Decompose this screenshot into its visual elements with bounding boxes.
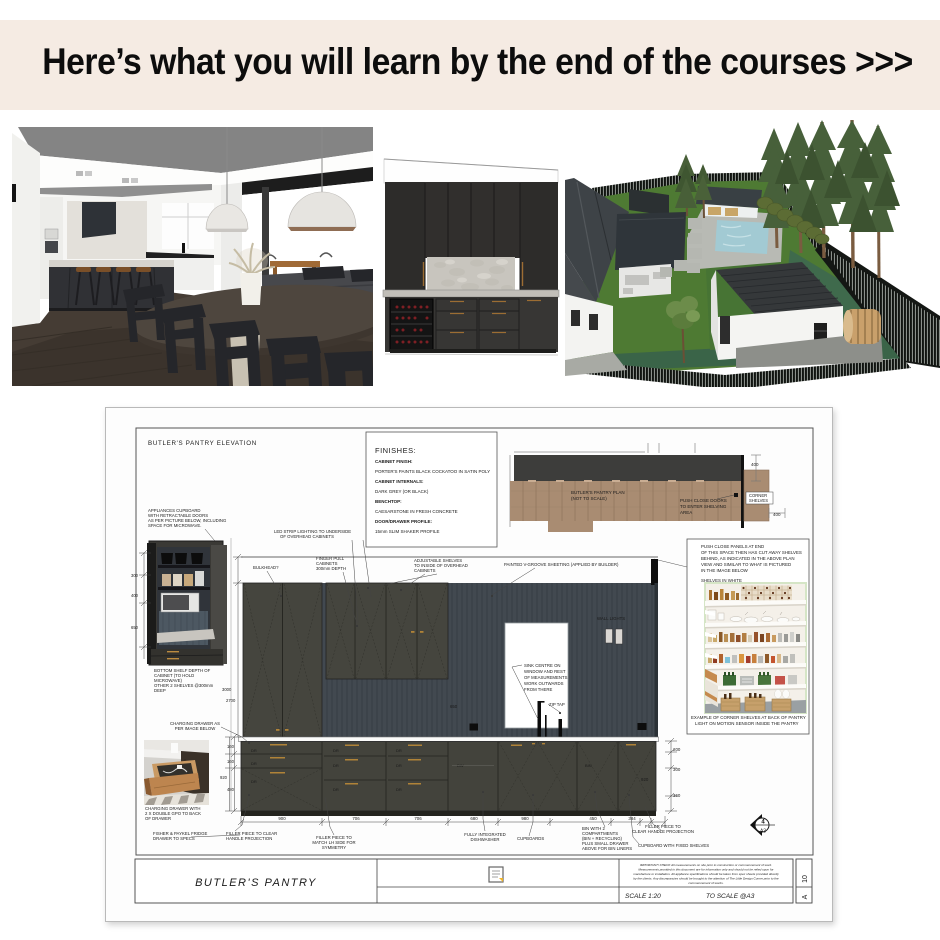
- svg-text:BUTLER'S PANTRY: BUTLER'S PANTRY: [195, 877, 317, 889]
- svg-text:DR: DR: [333, 748, 339, 753]
- svg-text:DARK GREY (OR BLACK): DARK GREY (OR BLACK): [375, 489, 429, 494]
- svg-text:DR: DR: [251, 748, 257, 753]
- svg-text:DR: DR: [251, 761, 257, 766]
- svg-text:A: A: [802, 894, 809, 899]
- svg-text:AREA: AREA: [680, 510, 692, 515]
- svg-text:384: 384: [628, 816, 636, 821]
- svg-text:706: 706: [352, 816, 360, 821]
- svg-text:Measurements provided in this: Measurements provided in this document a…: [638, 868, 774, 872]
- svg-text:300mm DEPTH: 300mm DEPTH: [316, 566, 346, 571]
- svg-text:(NOT TO SCALE): (NOT TO SCALE): [571, 496, 607, 501]
- svg-text:DR: DR: [333, 787, 339, 792]
- svg-text:CUPBOARD WITH FIXED SHELVES: CUPBOARD WITH FIXED SHELVES: [638, 843, 709, 848]
- svg-text:CUPBOARDS: CUPBOARDS: [517, 836, 544, 841]
- svg-text:PORTER'S PAINTS BLACK COCKATOO: PORTER'S PAINTS BLACK COCKATOO IN SATIN …: [375, 469, 490, 474]
- svg-text:920: 920: [220, 775, 228, 780]
- svg-text:400: 400: [773, 512, 781, 517]
- svg-text:CABINET FINISH:: CABINET FINISH:: [375, 459, 413, 464]
- svg-text:WALL LIGHTS: WALL LIGHTS: [597, 616, 625, 621]
- svg-text:VIEW AND SIMILAR TO WHAT IS PI: VIEW AND SIMILAR TO WHAT IS PICTURED: [701, 562, 791, 567]
- svg-text:BEHIND, AS INDICATED IN THE AB: BEHIND, AS INDICATED IN THE ABOVE PLAN: [701, 556, 795, 561]
- svg-text:PUSH CLOSE DOORS: PUSH CLOSE DOORS: [680, 498, 727, 503]
- svg-text:300: 300: [673, 767, 681, 772]
- svg-text:BENCHTOP:: BENCHTOP:: [375, 499, 402, 504]
- svg-text:WINDOW AND REST: WINDOW AND REST: [524, 669, 566, 674]
- svg-text:200: 200: [673, 747, 681, 752]
- svg-text:CABINET INTERNALS:: CABINET INTERNALS:: [375, 479, 424, 484]
- svg-text:BUTLER'S PANTRY PLAN: BUTLER'S PANTRY PLAN: [571, 490, 625, 495]
- svg-text:DR: DR: [396, 763, 402, 768]
- svg-text:HANDLE PROJECTION: HANDLE PROJECTION: [226, 836, 272, 841]
- svg-text:650: 650: [450, 704, 458, 709]
- svg-text:CABINETS: CABINETS: [414, 568, 436, 573]
- svg-text:360: 360: [673, 793, 681, 798]
- svg-text:3000: 3000: [222, 687, 232, 692]
- svg-text:650: 650: [131, 625, 139, 630]
- svg-text:manufacture or installation. A: manufacture or installation. All applian…: [633, 872, 779, 876]
- svg-text:300: 300: [131, 573, 139, 578]
- svg-text:TO ENTER SHELVING: TO ENTER SHELVING: [680, 504, 727, 509]
- svg-text:DRAWER TO SPECS: DRAWER TO SPECS: [153, 836, 195, 841]
- svg-text:BULKHEAD?: BULKHEAD?: [253, 565, 279, 570]
- svg-text:SYMMETRY: SYMMETRY: [322, 845, 346, 850]
- svg-text:WORK OUTWARDS: WORK OUTWARDS: [524, 681, 564, 686]
- svg-text:SINK CENTRE ON: SINK CENTRE ON: [524, 663, 561, 668]
- svg-text:DR: DR: [396, 787, 402, 792]
- svg-text:A3: A3: [760, 829, 766, 835]
- svg-text:CAESARSTONE IN FRESH CONCRETE: CAESARSTONE IN FRESH CONCRETE: [375, 509, 458, 514]
- svg-text:920: 920: [641, 777, 649, 782]
- svg-text:FROM THERE: FROM THERE: [524, 687, 552, 692]
- svg-text:400: 400: [751, 462, 759, 467]
- svg-text:900: 900: [278, 816, 286, 821]
- svg-text:980: 980: [521, 816, 529, 821]
- svg-text:IN THE IMAGE BELOW: IN THE IMAGE BELOW: [701, 568, 749, 573]
- svg-text:CLEAR HANDLE PROJECTION: CLEAR HANDLE PROJECTION: [632, 829, 694, 834]
- svg-text:15mm SLIM SHAKER PROFILE: 15mm SLIM SHAKER PROFILE: [375, 529, 440, 534]
- svg-text:TO SCALE @A3: TO SCALE @A3: [706, 893, 755, 900]
- svg-text:OF THIS SPACE THEN HAS CUT AWA: OF THIS SPACE THEN HAS CUT AWAY SHELVES: [701, 550, 802, 555]
- svg-text:450: 450: [589, 816, 597, 821]
- svg-text:by the clients. Any discrepanc: by the clients. Any discrepancies should…: [633, 877, 778, 881]
- svg-text:OF MEASUREMENTS: OF MEASUREMENTS: [524, 675, 568, 680]
- svg-text:SPACE FOR MICROWAVE.: SPACE FOR MICROWAVE.: [148, 523, 201, 528]
- svg-text:commencement of works.: commencement of works.: [688, 881, 723, 885]
- svg-text:400: 400: [131, 593, 139, 598]
- svg-text:OF DRAWER: OF DRAWER: [145, 816, 171, 821]
- svg-text:706: 706: [414, 816, 422, 821]
- svg-text:ABOVE FOR BIN LINERS: ABOVE FOR BIN LINERS: [582, 846, 632, 851]
- svg-text:SHELVES: SHELVES: [749, 498, 768, 503]
- svg-text:DR: DR: [251, 779, 257, 784]
- svg-text:PER IMAGE BELOW: PER IMAGE BELOW: [175, 726, 217, 731]
- svg-text:DISHWASHER: DISHWASHER: [471, 837, 500, 842]
- svg-text:DOOR/DRAWER PROFILE:: DOOR/DRAWER PROFILE:: [375, 519, 433, 524]
- svg-text:BUTLER'S PANTRY ELEVATION: BUTLER'S PANTRY ELEVATION: [148, 440, 257, 447]
- svg-text:FINISHES:: FINISHES:: [375, 446, 416, 455]
- svg-text:LIGHT ON MOTION SENSOR INSIDE: LIGHT ON MOTION SENSOR INSIDE THE PANTRY: [695, 721, 799, 726]
- svg-text:DEEP: DEEP: [154, 688, 166, 693]
- svg-text:EXAMPLE OF CORNER SHELVES AT B: EXAMPLE OF CORNER SHELVES AT BACK OF PAN…: [691, 715, 806, 720]
- svg-text:OF OVERHEAD CABINETS: OF OVERHEAD CABINETS: [280, 534, 334, 539]
- svg-text:PAINTED V-GROOVE SHEETING (APP: PAINTED V-GROOVE SHEETING (APPLIED BY BU…: [504, 562, 619, 567]
- svg-text:DR: DR: [333, 763, 339, 768]
- svg-text:10: 10: [802, 875, 809, 883]
- svg-text:IMPORTANT! CHECK All measureme: IMPORTANT! CHECK All measurements on sit…: [640, 863, 772, 867]
- svg-text:SCALE 1:20: SCALE 1:20: [625, 893, 661, 900]
- svg-text:680: 680: [470, 816, 478, 821]
- svg-text:PUSH CLOSE PANELS AT END: PUSH CLOSE PANELS AT END: [701, 544, 764, 549]
- svg-text:DR: DR: [396, 748, 402, 753]
